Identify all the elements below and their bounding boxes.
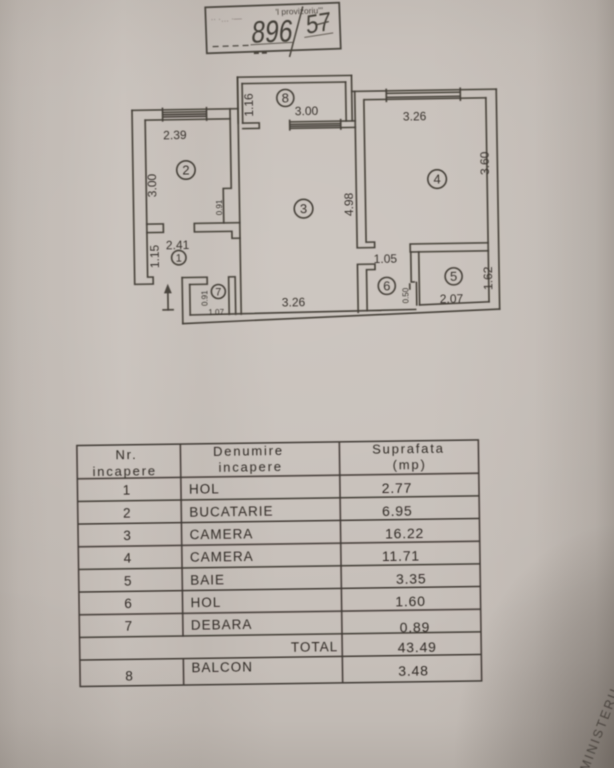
svg-text:TOTAL: TOTAL bbox=[291, 639, 338, 655]
svg-text:1.62: 1.62 bbox=[481, 266, 495, 290]
svg-text:1.60: 1.60 bbox=[395, 593, 426, 609]
svg-text:HOL: HOL bbox=[189, 481, 220, 496]
svg-text:3: 3 bbox=[300, 201, 307, 216]
svg-text:3.35: 3.35 bbox=[396, 570, 427, 586]
svg-text:1: 1 bbox=[176, 253, 182, 265]
svg-text:7: 7 bbox=[215, 286, 221, 298]
svg-text:4: 4 bbox=[433, 172, 440, 187]
svg-text:·· ·… ·—: ·· ·… ·— bbox=[211, 14, 242, 24]
svg-text:6: 6 bbox=[383, 278, 390, 293]
svg-text:CAMERA: CAMERA bbox=[190, 549, 254, 565]
svg-text:3.60: 3.60 bbox=[478, 151, 492, 175]
svg-text:DEBARA: DEBARA bbox=[191, 617, 253, 633]
svg-text:6.95: 6.95 bbox=[382, 503, 413, 519]
svg-text:incapere: incapere bbox=[218, 459, 282, 475]
svg-text:7: 7 bbox=[125, 619, 134, 634]
svg-text:BALCON: BALCON bbox=[191, 659, 253, 675]
svg-text:4.98: 4.98 bbox=[342, 192, 356, 216]
svg-text:CAMERA: CAMERA bbox=[189, 526, 253, 542]
svg-text:5: 5 bbox=[450, 269, 457, 284]
svg-text:2: 2 bbox=[182, 162, 189, 177]
svg-text:0.89: 0.89 bbox=[400, 619, 431, 635]
svg-text:1.15: 1.15 bbox=[148, 244, 162, 268]
svg-text:2.41: 2.41 bbox=[166, 238, 190, 252]
svg-text:1.16: 1.16 bbox=[242, 93, 256, 117]
svg-text:0.91: 0.91 bbox=[200, 290, 209, 306]
svg-text:2: 2 bbox=[123, 506, 132, 521]
svg-text:1.07: 1.07 bbox=[208, 308, 224, 317]
svg-text:1: 1 bbox=[123, 483, 132, 498]
svg-text:5: 5 bbox=[124, 574, 133, 589]
svg-text:2.39: 2.39 bbox=[163, 128, 187, 142]
svg-text:2.77: 2.77 bbox=[382, 480, 413, 496]
svg-text:8: 8 bbox=[125, 669, 134, 684]
svg-text:BUCATARIE: BUCATARIE bbox=[189, 504, 273, 520]
svg-text:MINISTERU: MINISTERU bbox=[578, 685, 614, 768]
svg-text:incapere: incapere bbox=[92, 463, 156, 479]
svg-text:4: 4 bbox=[124, 551, 133, 566]
svg-text:0.91: 0.91 bbox=[215, 199, 224, 215]
svg-text:16.22: 16.22 bbox=[385, 525, 424, 542]
svg-text:BAIE: BAIE bbox=[190, 572, 225, 587]
svg-text:6: 6 bbox=[124, 596, 133, 611]
svg-text:1.05: 1.05 bbox=[374, 252, 398, 266]
svg-text:3.48: 3.48 bbox=[398, 662, 429, 678]
svg-text:Denumire: Denumire bbox=[213, 443, 284, 459]
svg-text:HOL: HOL bbox=[190, 595, 221, 610]
svg-text:3.26: 3.26 bbox=[403, 109, 427, 123]
svg-text:8: 8 bbox=[282, 90, 289, 105]
svg-text:Suprafata: Suprafata bbox=[372, 441, 445, 457]
svg-text:3.00: 3.00 bbox=[295, 104, 319, 118]
svg-text:3.26: 3.26 bbox=[282, 295, 306, 309]
svg-text:0.50: 0.50 bbox=[401, 287, 410, 303]
svg-text:3: 3 bbox=[123, 528, 132, 543]
svg-text:Nr.: Nr. bbox=[115, 447, 137, 462]
svg-text:3.00: 3.00 bbox=[145, 173, 159, 197]
svg-text:2.07: 2.07 bbox=[440, 292, 464, 306]
svg-text:43.49: 43.49 bbox=[398, 639, 437, 656]
svg-text:11.71: 11.71 bbox=[382, 548, 420, 565]
svg-text:(mp): (mp) bbox=[393, 457, 427, 472]
